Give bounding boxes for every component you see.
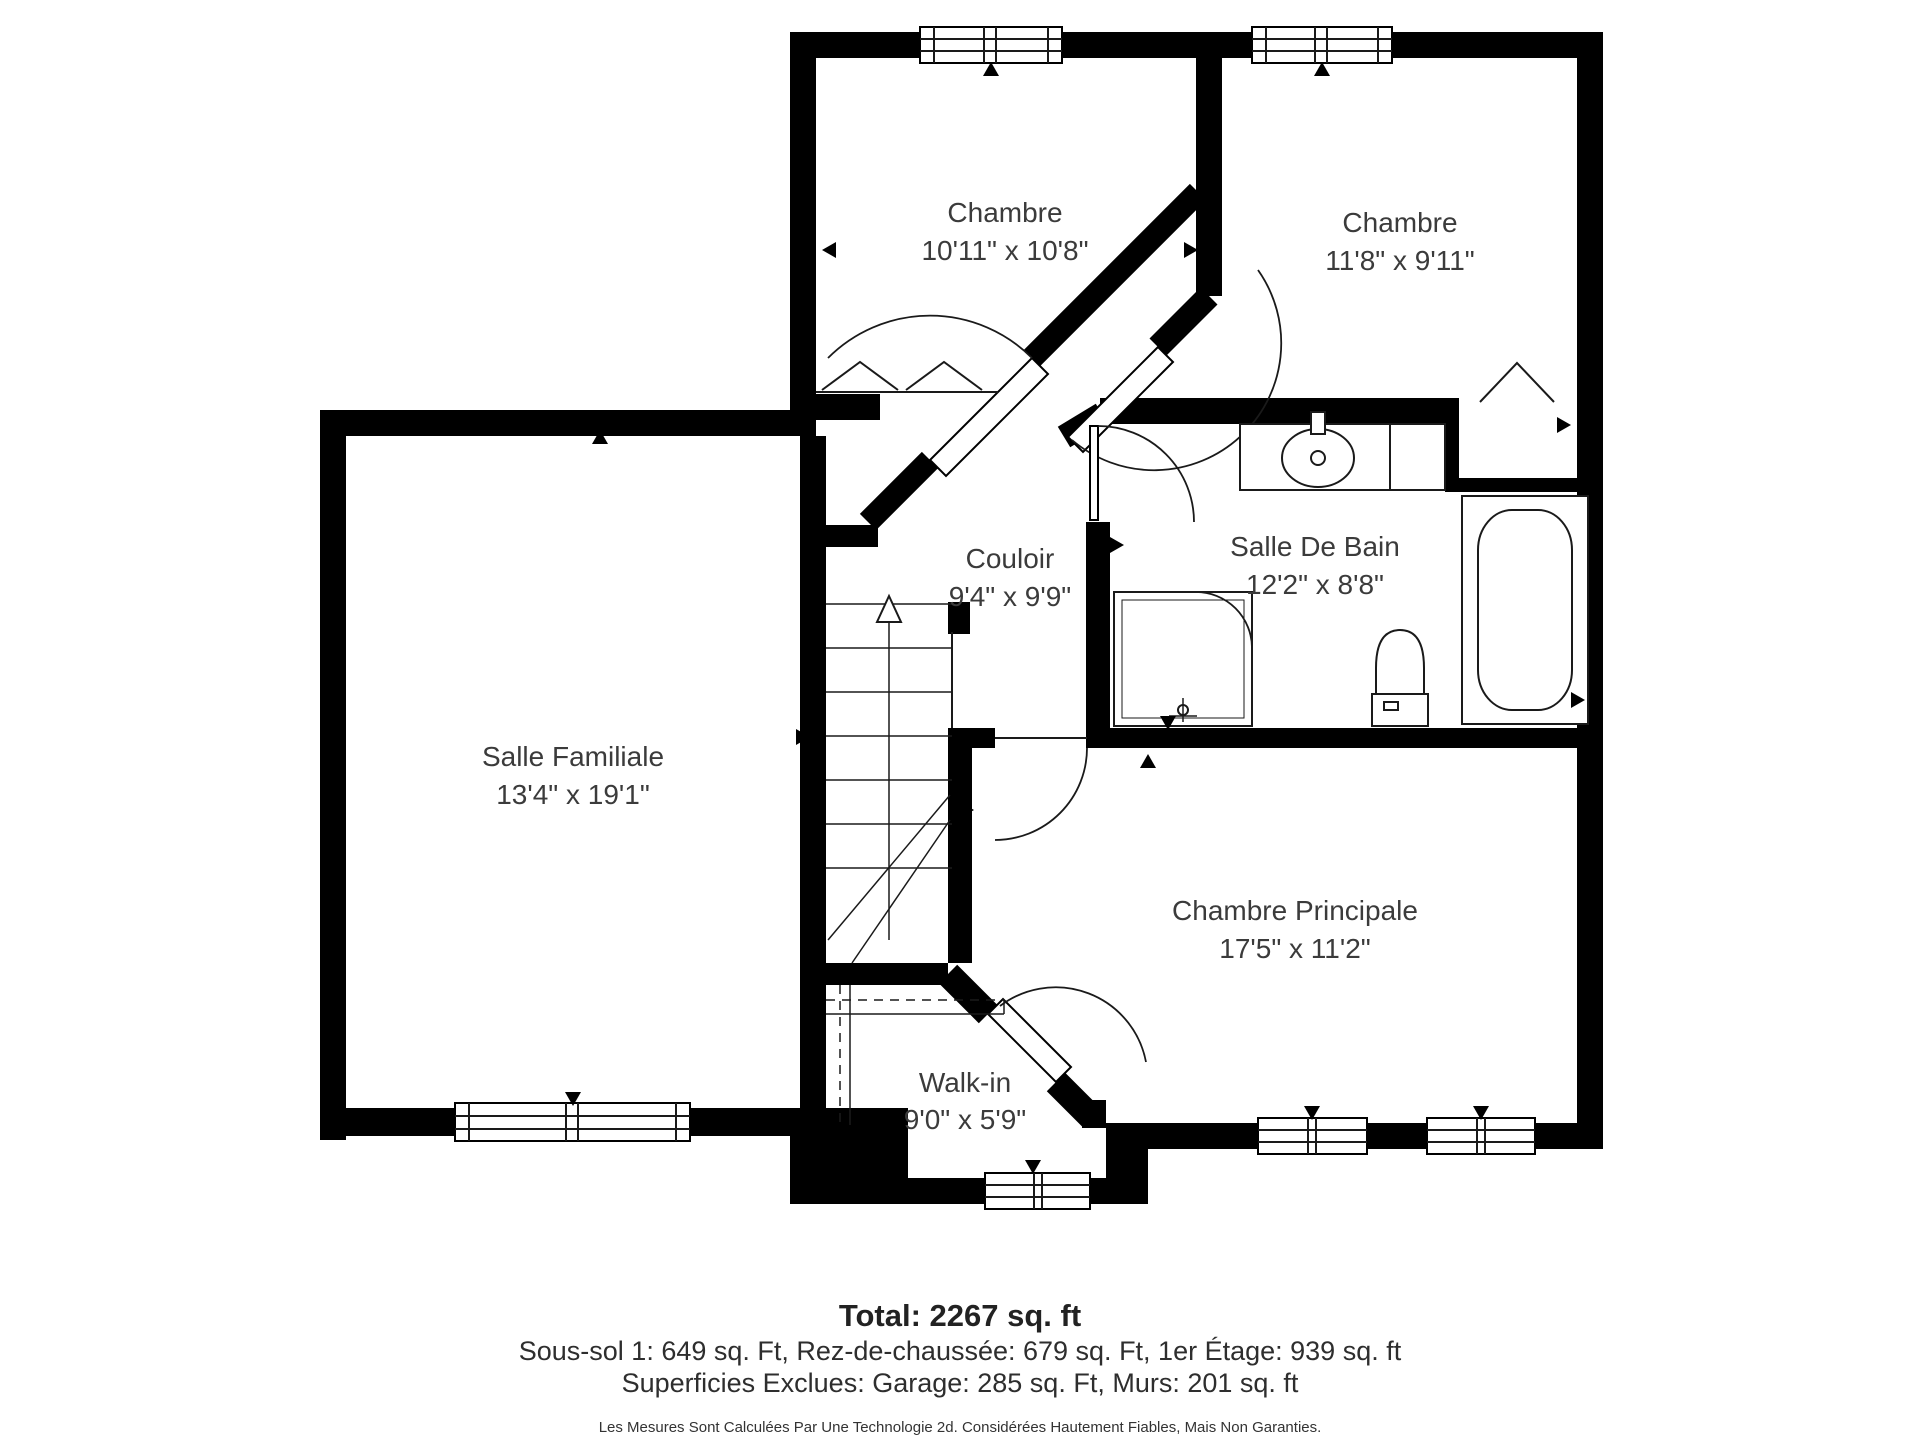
floor-plan-canvas: Chambre 10'11" x 10'8" Chambre 11'8" x 9… — [0, 0, 1920, 1440]
floor-plan-page: Chambre 10'11" x 10'8" Chambre 11'8" x 9… — [0, 0, 1920, 1440]
room-label-walk-in: Walk-in 9'0" x 5'9" — [904, 1067, 1026, 1135]
disclaimer-text: Les Mesures Sont Calculées Par Une Techn… — [599, 1419, 1322, 1436]
marker-triangle-icon — [1314, 62, 1330, 76]
room-label-chambre-principale: Chambre Principale 17'5" x 11'2" — [1172, 895, 1418, 964]
stairs-up-arrow-icon — [877, 596, 901, 622]
door-leaf — [1090, 426, 1098, 520]
window — [1258, 1118, 1367, 1154]
room-name: Salle Familiale — [482, 741, 664, 772]
room-name: Chambre Principale — [1172, 895, 1418, 926]
marker-triangle-icon — [1557, 417, 1571, 433]
window — [1427, 1118, 1535, 1154]
room-dimensions: 11'8" x 9'11" — [1325, 245, 1474, 276]
room-dimensions: 9'0" x 5'9" — [904, 1104, 1026, 1135]
door-arc — [1098, 426, 1194, 522]
closet-chevron-icon — [1480, 363, 1554, 402]
staircase — [826, 596, 952, 963]
room-label-couloir: Couloir 9'4" x 9'9" — [949, 543, 1071, 612]
excluded-areas-text: Superficies Exclues: Garage: 285 sq. Ft,… — [622, 1368, 1299, 1398]
marker-triangle-icon — [1140, 754, 1156, 768]
window — [985, 1173, 1090, 1209]
room-label-chambre-1: Chambre 10'11" x 10'8" — [921, 197, 1088, 266]
room-dimensions: 17'5" x 11'2" — [1219, 933, 1370, 964]
marker-triangle-icon — [822, 242, 836, 258]
marker-triangle-icon — [1110, 537, 1124, 553]
footer-summary: Total: 2267 sq. ft Sous-sol 1: 649 sq. F… — [519, 1298, 1402, 1436]
marker-triangle-icon — [1184, 242, 1198, 258]
door-arc — [995, 748, 1087, 840]
sink-vanity — [1240, 412, 1445, 490]
shower — [1114, 592, 1252, 726]
room-name: Salle De Bain — [1230, 531, 1400, 562]
room-name: Couloir — [966, 543, 1055, 574]
room-name: Chambre — [1342, 207, 1457, 238]
door-leaf — [930, 358, 1048, 476]
room-dimensions: 9'4" x 9'9" — [949, 581, 1071, 612]
window — [1252, 27, 1392, 63]
window — [455, 1103, 690, 1141]
room-name: Walk-in — [919, 1067, 1011, 1098]
closet-chevron-icon — [906, 362, 982, 390]
room-dimensions: 13'4" x 19'1" — [496, 779, 650, 810]
marker-triangle-icon — [983, 62, 999, 76]
room-dimensions: 10'11" x 10'8" — [921, 235, 1088, 266]
window — [920, 27, 1062, 63]
room-label-salle-familiale: Salle Familiale 13'4" x 19'1" — [482, 741, 664, 810]
closet-chevron-icon — [822, 362, 898, 390]
room-name: Chambre — [947, 197, 1062, 228]
door-arc — [828, 316, 1032, 358]
total-area-text: Total: 2267 sq. ft — [839, 1298, 1081, 1333]
room-dimensions: 12'2" x 8'8" — [1246, 569, 1384, 600]
toilet — [1372, 630, 1428, 726]
marker-triangle-icon — [1025, 1160, 1041, 1174]
room-label-salle-de-bain: Salle De Bain 12'2" x 8'8" — [1230, 531, 1400, 600]
floor-areas-text: Sous-sol 1: 649 sq. Ft, Rez-de-chaussée:… — [519, 1336, 1402, 1366]
room-label-chambre-2: Chambre 11'8" x 9'11" — [1325, 207, 1474, 276]
bathtub — [1462, 496, 1588, 724]
